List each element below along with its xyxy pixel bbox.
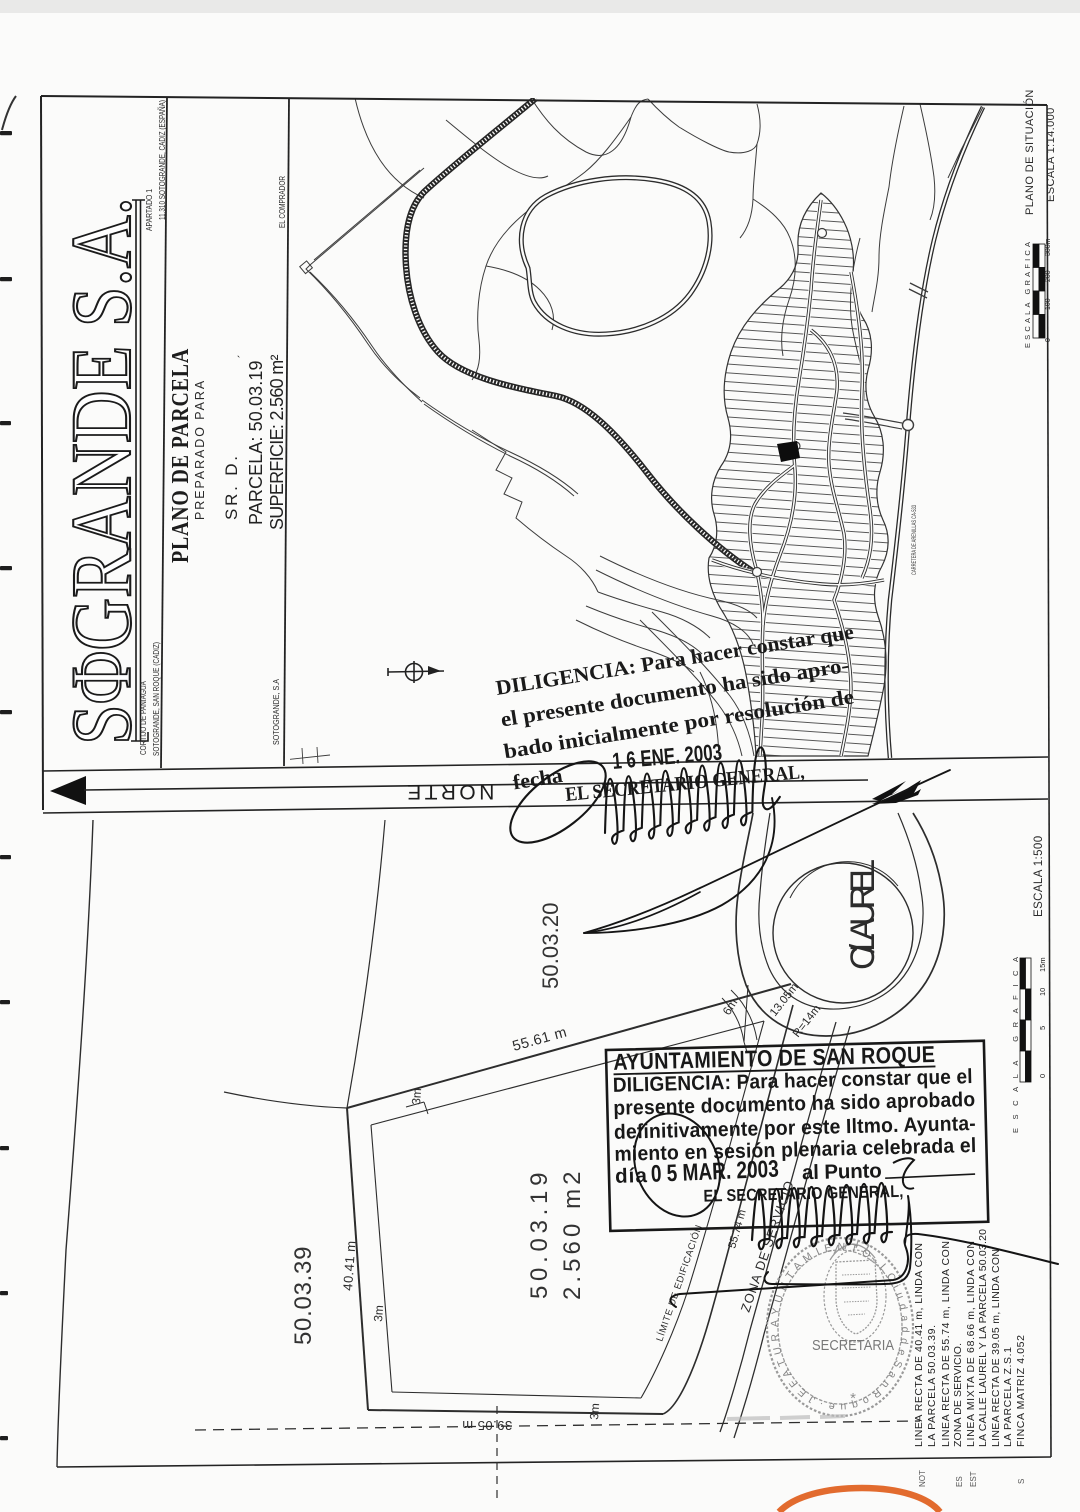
svg-text:15m: 15m (1038, 957, 1047, 972)
svg-text:LINEA RECTA DE 40.41 m, LINDA: LINEA RECTA DE 40.41 m, LINDA CON (913, 1243, 925, 1447)
svg-text:PLANO DE SITUACIÓN: PLANO DE SITUACIÓN (1023, 89, 1036, 215)
svg-text:FINCA MATRIZ 4.052: FINCA MATRIZ 4.052 (1015, 1335, 1027, 1447)
svg-text:ESCALA 1:14.000: ESCALA 1:14.000 (1045, 107, 1057, 202)
svg-text:SOTOGRANDE, SAN ROQUE (CADIZ): SOTOGRANDE, SAN ROQUE (CADIZ) (152, 642, 161, 756)
svg-text:5: 5 (1038, 1026, 1047, 1030)
svg-text:EL COMPRADOR: EL COMPRADOR (278, 176, 287, 228)
svg-text:LINEA RECTA DE 39.05 m, LINDA: LINEA RECTA DE 39.05 m, LINDA CON (990, 1249, 1002, 1447)
svg-text:LA CALLE LAUREL Y LA PARCELA 5: LA CALLE LAUREL Y LA PARCELA 50.03.20 (977, 1229, 989, 1447)
svg-text:APARTADO 1: APARTADO 1 (145, 189, 154, 231)
svg-text:11.310 SOTOGRANDE, CADIZ (ESPA: 11.310 SOTOGRANDE, CADIZ (ESPAÑA) (158, 100, 167, 220)
svg-text:ES: ES (955, 1476, 964, 1487)
svg-text:CARRETERA DE ARENILLAS CA-533: CARRETERA DE ARENILLAS CA-533 (911, 505, 918, 575)
svg-text:0: 0 (1038, 1074, 1047, 1078)
svg-text:LA PARCELA Z.S.1: LA PARCELA Z.S.1 (1002, 1347, 1014, 1447)
svg-text:PREPARADO PARA: PREPARADO PARA (193, 380, 207, 520)
svg-text:50.03.20: 50.03.20 (538, 901, 563, 989)
svg-text:C/LAUREL: C/LAUREL (844, 858, 882, 970)
svg-text:día: día (615, 1164, 648, 1188)
svg-text:LINEA MIXTA DE 68.66 m, LINDA: LINEA MIXTA DE 68.66 m, LINDA CON (965, 1241, 977, 1447)
svg-text:LA PARCELA 50.03.39.: LA PARCELA 50.03.39. (926, 1325, 938, 1447)
svg-text:LINEA RECTA DE 55.74 m, LIND: LINEA RECTA DE 55.74 m, LINDA CON (940, 1241, 952, 1447)
svg-text:3m: 3m (587, 1403, 602, 1421)
svg-text:PARCELA: 50.03.19: PARCELA: 50.03.19 (246, 360, 266, 525)
svg-text:2.560 m2: 2.560 m2 (559, 1170, 586, 1300)
svg-text:SUPERFICIE: 2.560 m²: SUPERFICIE: 2.560 m² (267, 354, 287, 530)
svg-text:S: S (1017, 1479, 1026, 1484)
svg-text:NOT: NOT (918, 1470, 927, 1487)
svg-text:*: * (850, 1390, 856, 1407)
svg-text:100: 100 (1045, 298, 1052, 310)
svg-text:10: 10 (1038, 988, 1047, 996)
svg-text:39.05 m: 39.05 m (462, 1418, 512, 1433)
svg-text:3m: 3m (371, 1305, 386, 1323)
svg-text:200: 200 (1045, 270, 1052, 282)
svg-text:´: ´ (237, 354, 249, 358)
svg-text:EST: EST (969, 1471, 978, 1487)
svg-text:CORTIJO DE PANIAGUA: CORTIJO DE PANIAGUA (139, 680, 148, 755)
svg-text:NORTE: NORTE (404, 780, 495, 803)
svg-text:300m: 300m (1045, 238, 1052, 256)
svg-text:SR. D.: SR. D. (222, 456, 241, 520)
svg-text:SOTOGRANDE, S.A: SOTOGRANDE, S.A (272, 678, 281, 745)
svg-text:0: 0 (1045, 338, 1052, 342)
svg-text:SECRETARIA: SECRETARIA (812, 1337, 894, 1354)
svg-text:50.03.39: 50.03.39 (290, 1245, 317, 1345)
svg-text:ESCALA 1:500: ESCALA 1:500 (1033, 835, 1045, 917)
svg-text:SΦGRANDE S.A.: SΦGRANDE S.A. (53, 197, 149, 745)
svg-text:0 5 MAR. 2003: 0 5 MAR. 2003 (650, 1156, 779, 1188)
svg-text:al Punto: al Punto (802, 1159, 883, 1184)
svg-text:PLANO DE PARCELA: PLANO DE PARCELA (168, 348, 194, 563)
svg-text:ZONA DE SERVICIO.: ZONA DE SERVICIO. (952, 1343, 964, 1447)
